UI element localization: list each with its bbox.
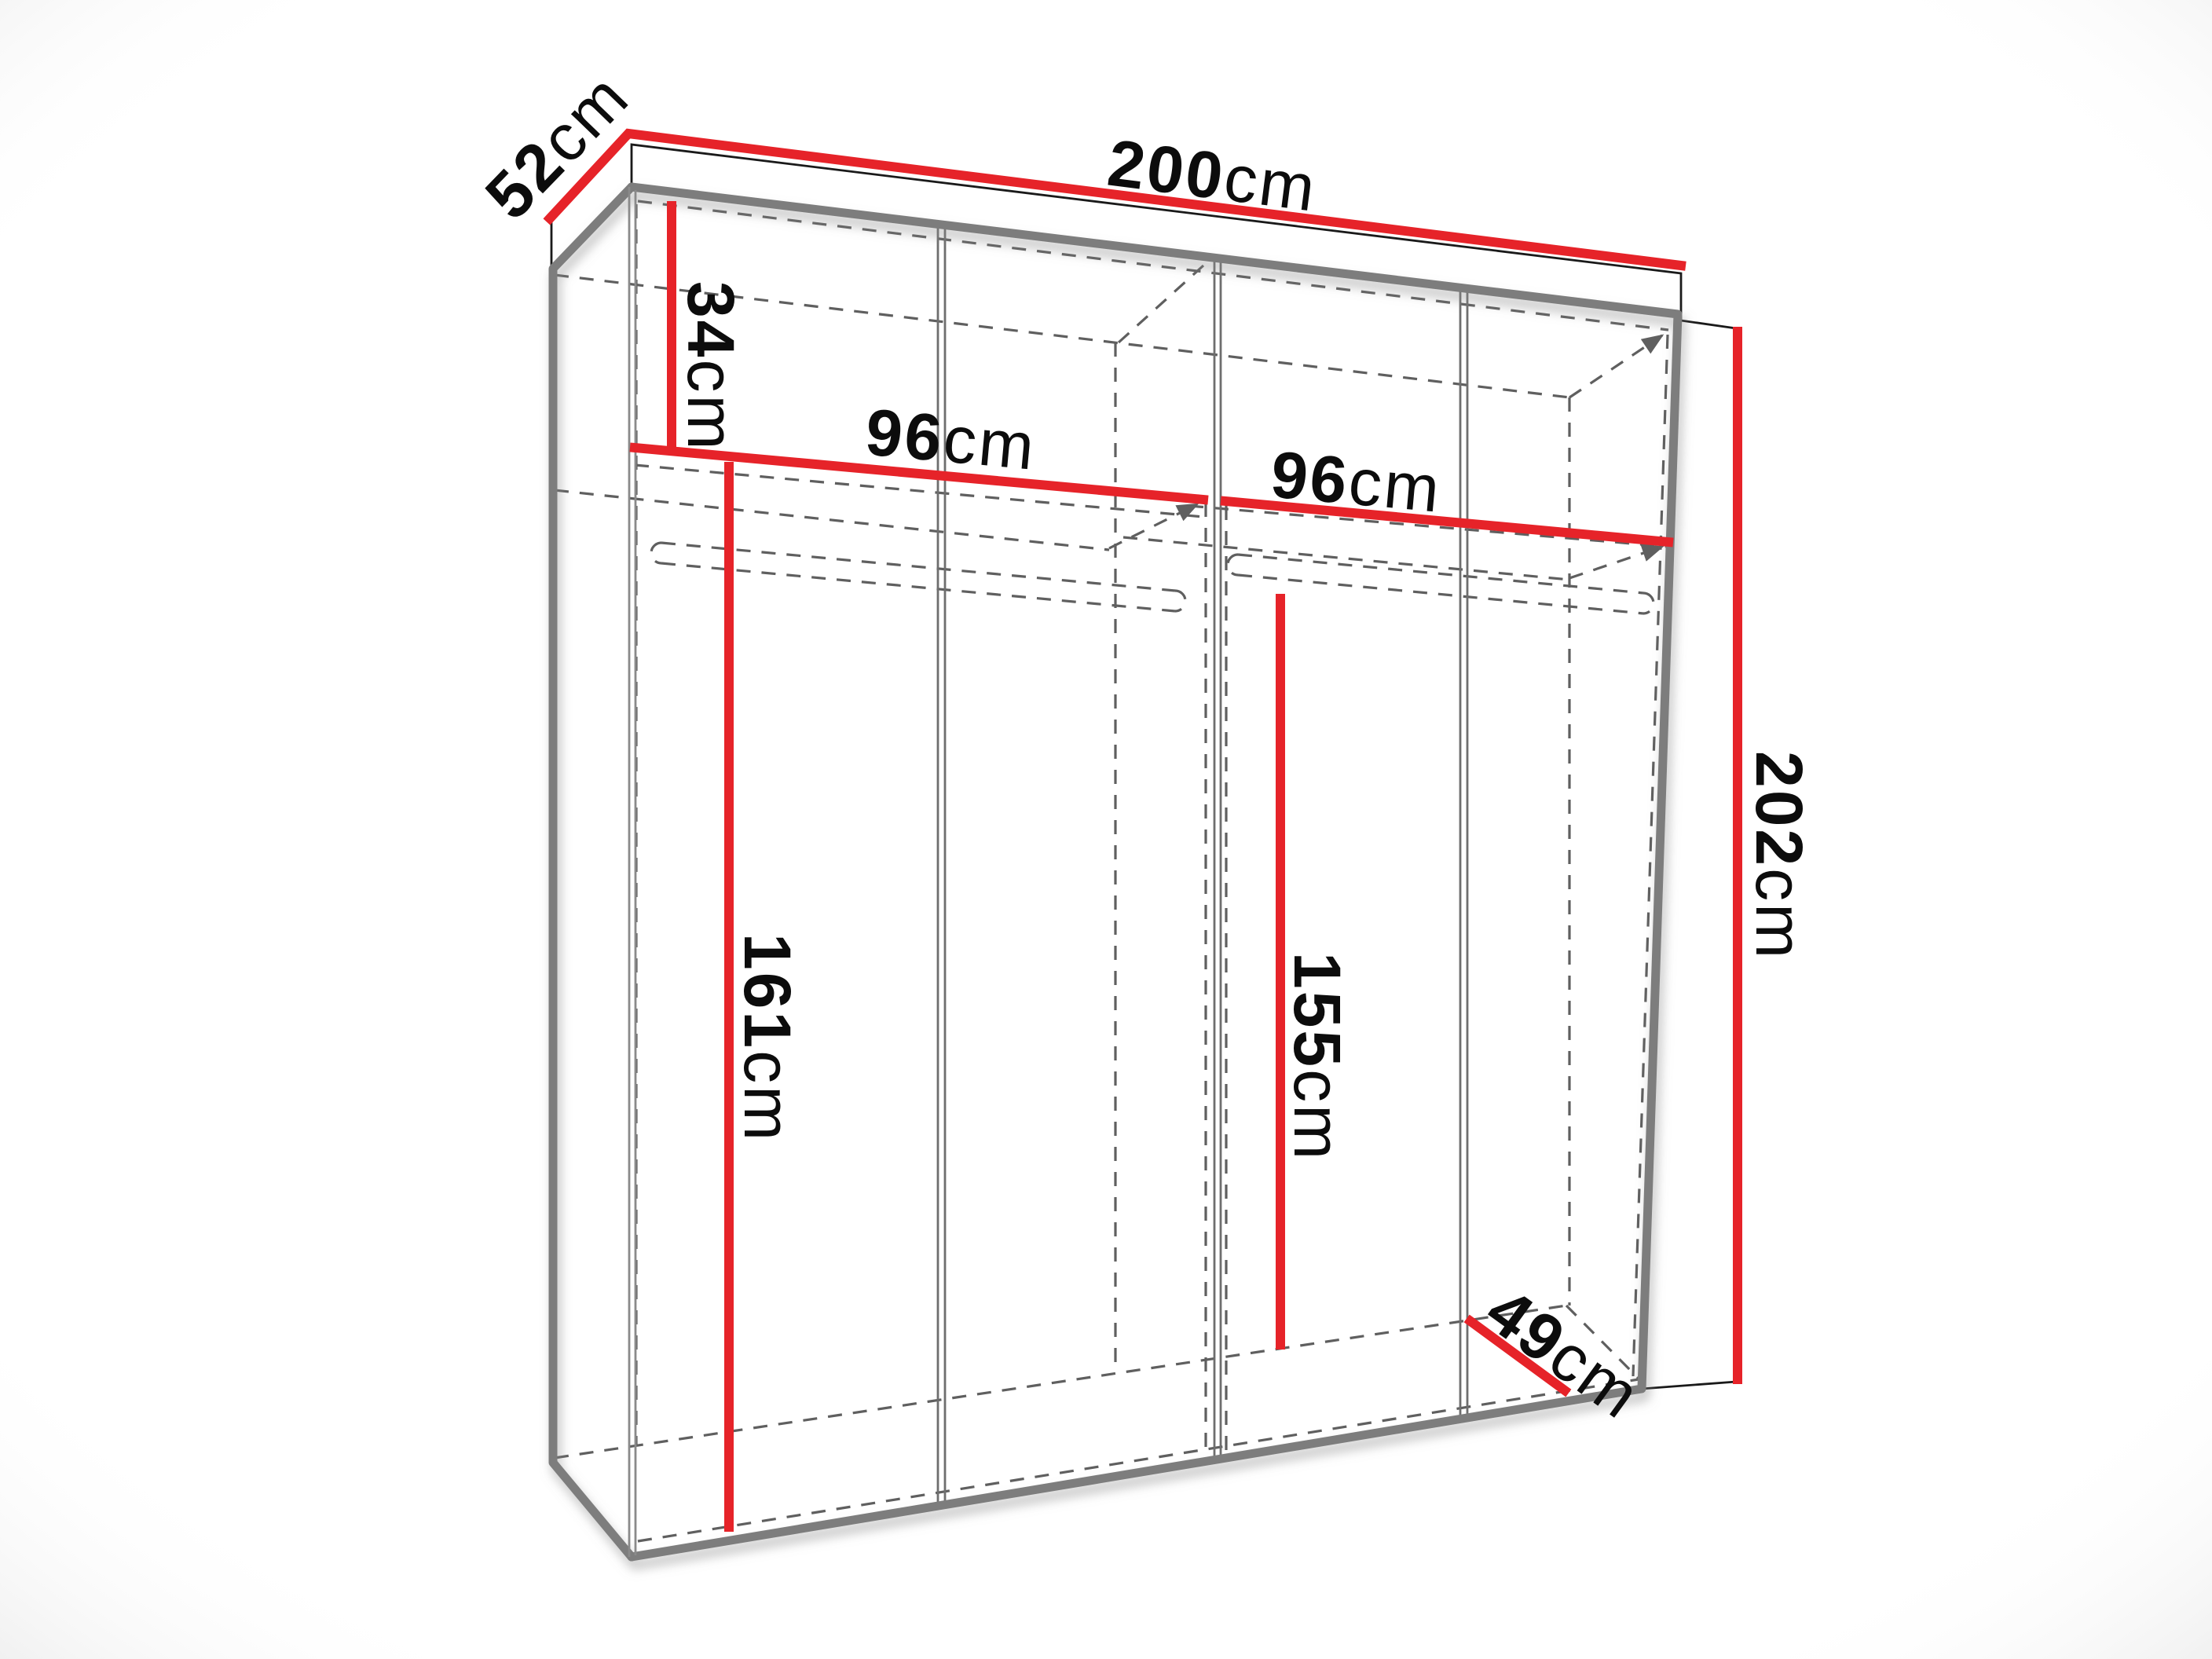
label-left-interior-height: 161cm	[731, 933, 804, 1143]
label-right-interior-height: 155cm	[1280, 952, 1354, 1162]
label-left-section-width: 96cm	[862, 394, 1039, 483]
wardrobe-dimension-diagram: 52cm 200cm 202cm 34cm 96cm 96cm 161cm 15…	[0, 0, 2212, 1659]
label-top-compartment-height: 34cm	[674, 281, 748, 452]
label-right-section-width: 96cm	[1268, 437, 1445, 526]
label-overall-height: 202cm	[1742, 751, 1816, 961]
diagram-canvas: 52cm 200cm 202cm 34cm 96cm 96cm 161cm 15…	[0, 0, 2212, 1659]
